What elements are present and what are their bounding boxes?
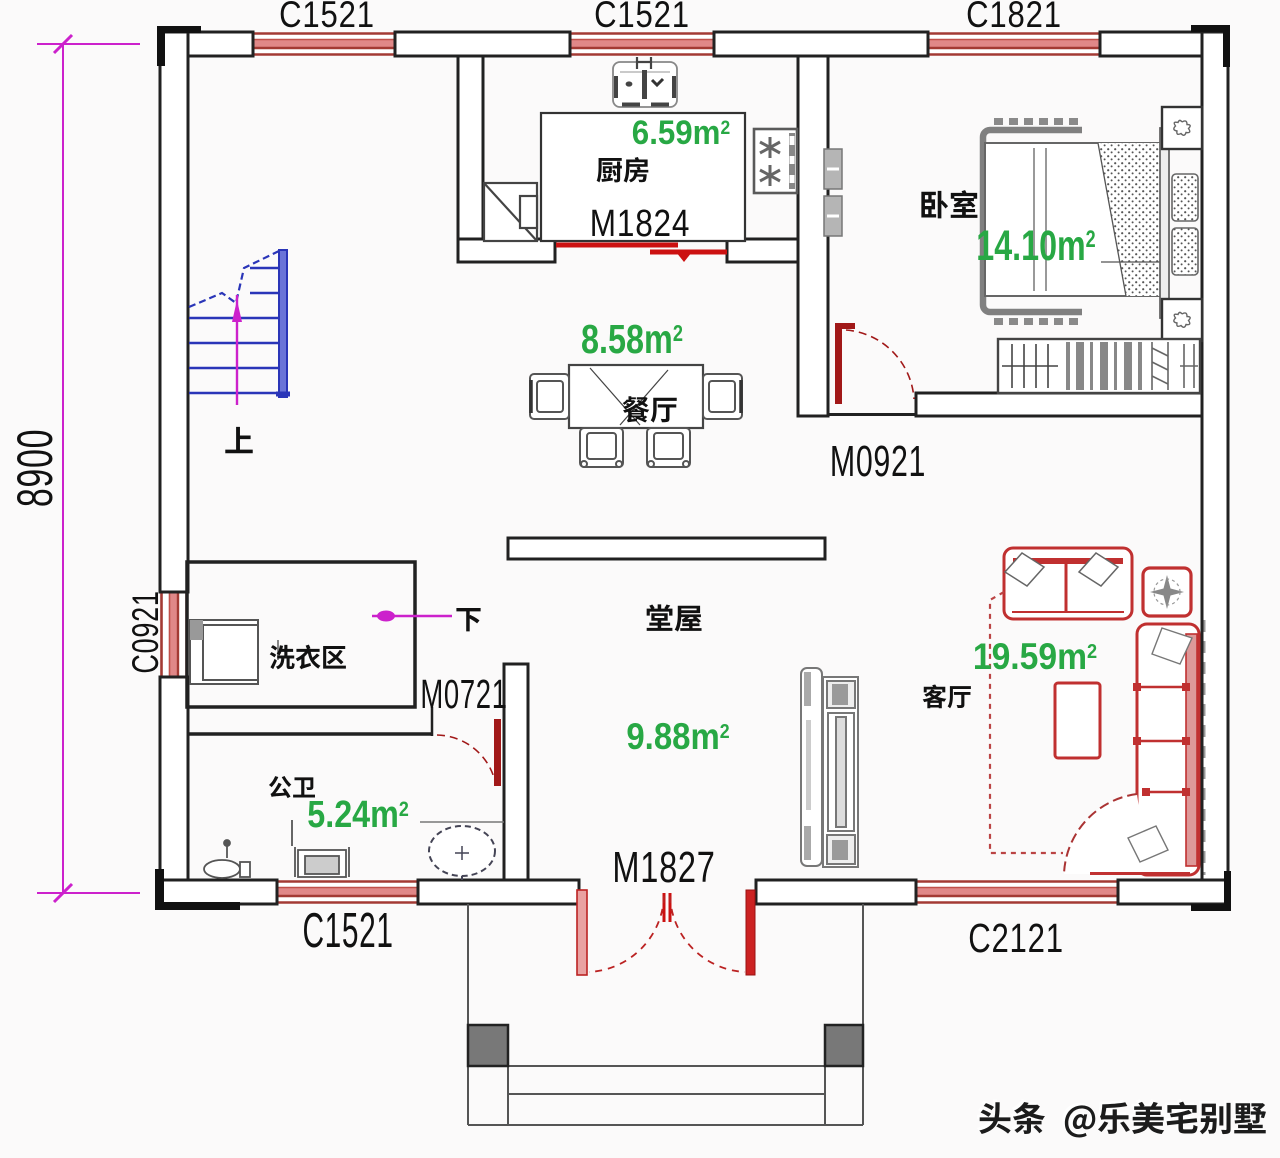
svg-text:8900: 8900: [8, 429, 64, 507]
svg-text:14.10m2: 14.10m2: [976, 223, 1095, 271]
svg-text:M0921: M0921: [830, 438, 926, 487]
svg-text:M0721: M0721: [420, 672, 507, 718]
svg-text:C1521: C1521: [594, 0, 690, 36]
svg-text:M1824: M1824: [590, 202, 691, 244]
svg-text:9.88m2: 9.88m2: [626, 716, 729, 757]
svg-text:6.59m2: 6.59m2: [632, 113, 730, 152]
svg-text:C2121: C2121: [968, 915, 1064, 961]
svg-text:C1821: C1821: [966, 0, 1062, 36]
svg-text:C1521: C1521: [302, 902, 393, 958]
svg-text:C0921: C0921: [125, 590, 166, 673]
svg-text:C1521: C1521: [279, 0, 375, 36]
svg-text:8.58m2: 8.58m2: [581, 316, 683, 361]
svg-text:19.59m2: 19.59m2: [973, 637, 1097, 678]
svg-text:5.24m2: 5.24m2: [307, 794, 409, 836]
svg-text:M1827: M1827: [612, 843, 715, 892]
